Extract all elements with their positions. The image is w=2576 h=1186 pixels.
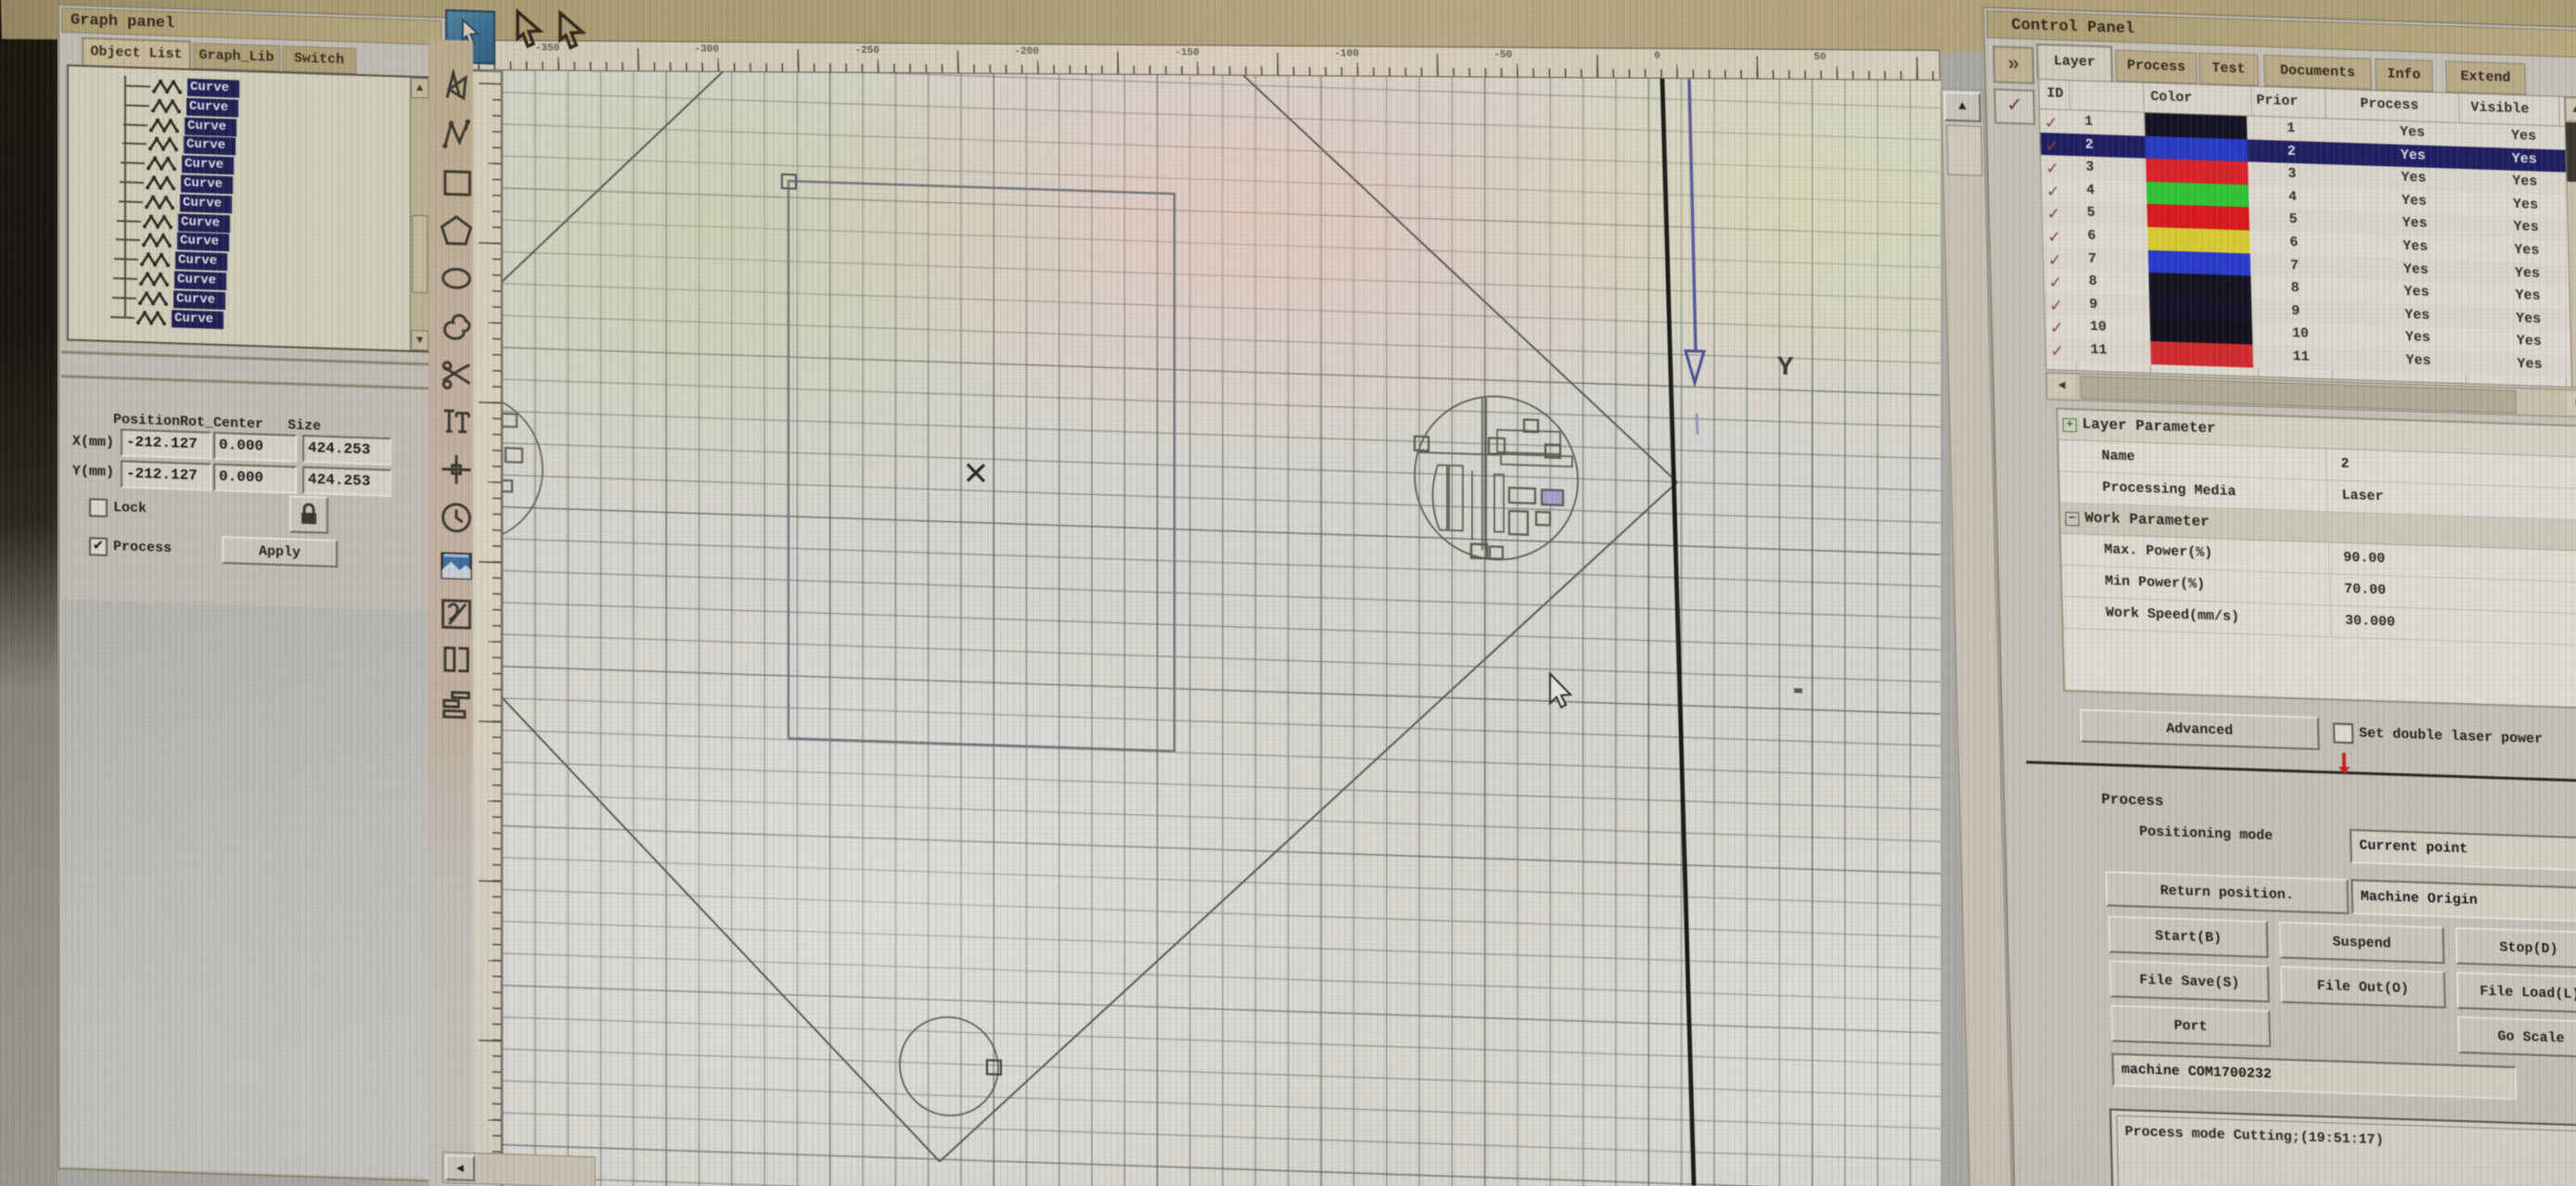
svg-text:Y: Y <box>1777 352 1794 384</box>
